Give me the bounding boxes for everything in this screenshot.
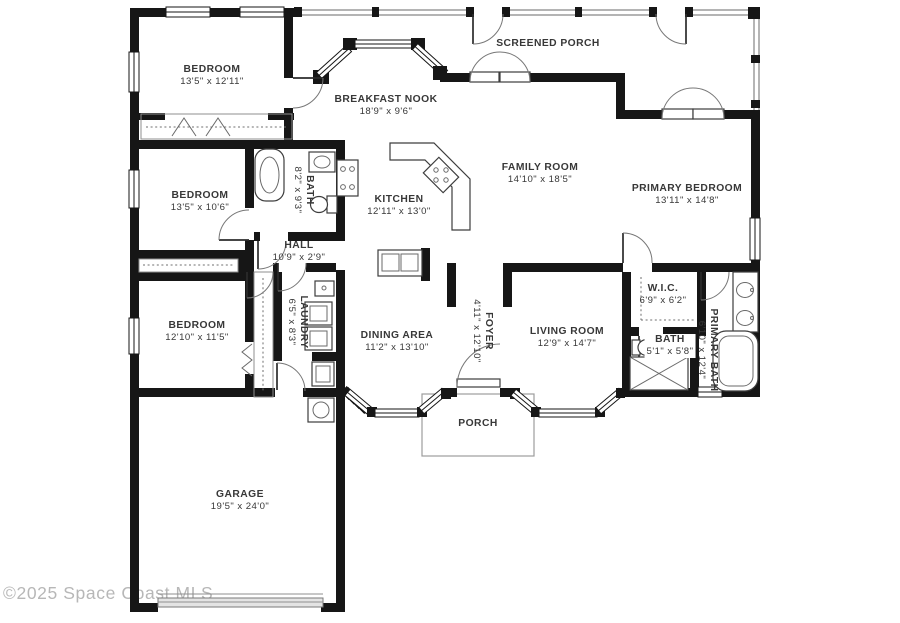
bath1-fixtures xyxy=(255,149,337,213)
windows xyxy=(129,7,760,397)
floor-plan-drawing xyxy=(0,0,900,623)
dining-bay-window xyxy=(345,388,451,417)
primary-bath-fixtures xyxy=(713,272,758,391)
garage-water-heater xyxy=(308,398,334,422)
living-room-bay-window xyxy=(510,388,625,417)
garage-door xyxy=(158,594,323,607)
kitchen-fixtures xyxy=(337,143,470,276)
bedroom2-closet xyxy=(139,259,238,272)
front-porch-slab xyxy=(422,394,534,456)
wic-closet-rods xyxy=(641,277,694,320)
laundry-fixtures xyxy=(305,281,334,386)
breakfast-nook-bay-window xyxy=(313,38,448,84)
bath2-fixtures xyxy=(630,340,688,391)
doors xyxy=(219,52,729,391)
walls xyxy=(130,8,760,612)
screened-porch-walls xyxy=(294,7,760,111)
floor-plan: ©2025 Space Coast MLS xyxy=(0,0,900,623)
